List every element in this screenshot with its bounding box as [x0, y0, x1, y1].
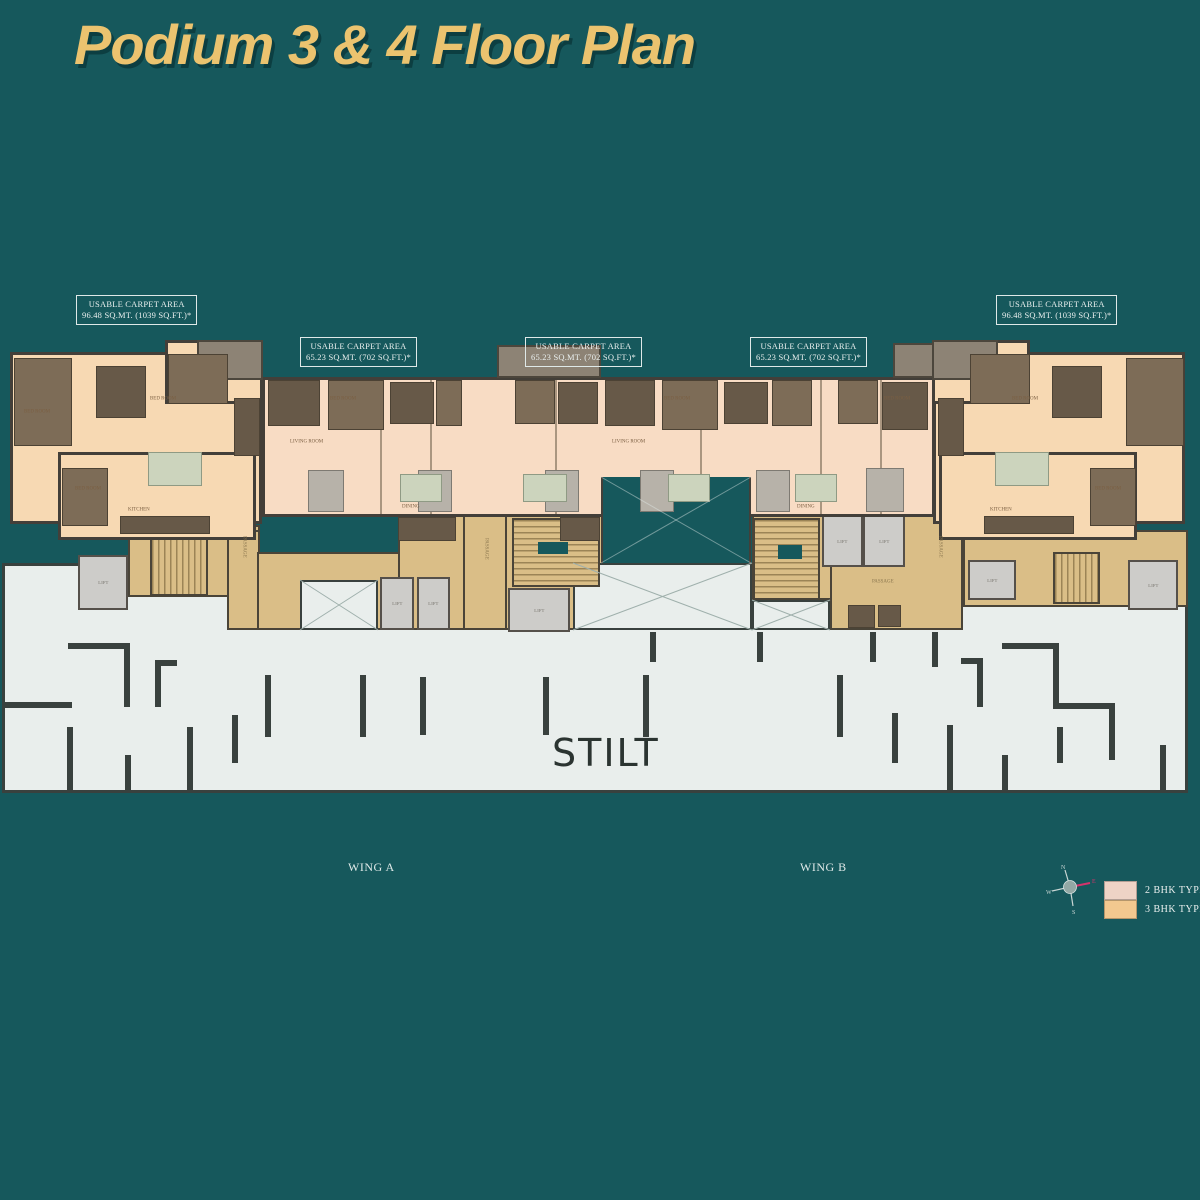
toilet-block: [308, 470, 344, 512]
area-label: USABLE CARPET AREA 96.48 SQ.MT. (1039 SQ…: [76, 295, 197, 325]
wall-segment: [947, 725, 953, 792]
area-label: USABLE CARPET AREA 65.23 SQ.MT. (702 SQ.…: [525, 337, 642, 367]
floor-plan-poster: LIFT LIFT LIFT LIFT LIFT LIFT LIFT LIFT: [0, 0, 1200, 1200]
room-label: BED ROOM: [75, 485, 101, 491]
furniture-block: [662, 380, 718, 430]
furniture-wardrobe: [1052, 366, 1102, 418]
wall-segment: [124, 643, 130, 707]
compass-n: N: [1061, 865, 1066, 871]
wall-segment: [1109, 703, 1115, 760]
area-label-line2: 96.48 SQ.MT. (1039 SQ.FT.)*: [1002, 310, 1111, 321]
legend-item-2bhk: 2 BHK TYPE 2: [1104, 881, 1200, 900]
lift-label: LIFT: [98, 580, 108, 585]
furniture-block: [436, 380, 462, 426]
compass-e: E: [1092, 879, 1096, 885]
furniture-bed: [1090, 468, 1136, 526]
lift-label: LIFT: [534, 608, 544, 613]
area-label-line1: USABLE CARPET AREA: [82, 299, 191, 310]
area-label-line1: USABLE CARPET AREA: [306, 341, 411, 352]
room-label: KITCHEN: [128, 506, 150, 512]
kitchen-counter: [560, 517, 600, 541]
compass-w: W: [1046, 890, 1052, 896]
lift-label: LIFT: [392, 601, 402, 606]
toilet-block: [866, 468, 904, 512]
staircase: [753, 518, 820, 600]
wall-segment: [420, 677, 426, 735]
meter-room: [848, 605, 875, 628]
stair-landing: [538, 542, 568, 554]
area-label-line1: USABLE CARPET AREA: [531, 341, 636, 352]
dining-table: [995, 452, 1049, 486]
crossed-open-area: [300, 580, 378, 630]
meter-room: [878, 605, 901, 627]
room-label: BED ROOM: [150, 395, 176, 401]
wall-segment: [932, 632, 938, 667]
furniture-block: [838, 380, 878, 424]
kitchen-counter: [120, 516, 210, 534]
wall-segment: [2, 702, 72, 708]
room-label: BED ROOM: [884, 395, 910, 401]
wall-segment: [643, 675, 649, 737]
room-label: DINING: [797, 503, 815, 509]
wall-segment: [892, 713, 898, 763]
wall-segment: [125, 755, 131, 790]
furniture-block: [390, 382, 434, 424]
lift-label: LIFT: [428, 601, 438, 606]
legend-label-2bhk: 2 BHK TYPE 2: [1145, 885, 1200, 896]
lift-label: LIFT: [879, 539, 889, 544]
area-label-line2: 65.23 SQ.MT. (702 SQ.FT.)*: [531, 352, 636, 363]
area-label-line1: USABLE CARPET AREA: [756, 341, 861, 352]
lift-box: LIFT: [380, 577, 414, 630]
wall-segment: [68, 643, 130, 649]
furniture-block: [772, 380, 812, 426]
wall-segment: [67, 727, 73, 790]
wall-segment: [1002, 755, 1008, 793]
room-label: BED ROOM: [330, 395, 356, 401]
furniture-block: [515, 380, 555, 424]
wall-segment: [265, 675, 271, 737]
wall-segment: [977, 658, 983, 707]
furniture-wardrobe: [234, 398, 260, 456]
furniture-bed: [62, 468, 108, 526]
crossed-open-area: [752, 600, 830, 630]
page-title: Podium 3 & 4 Floor Plan: [74, 12, 695, 77]
wall-segment: [187, 727, 193, 790]
wall-segment: [837, 675, 843, 737]
wall-segment: [650, 632, 656, 662]
toilet-block: [756, 470, 790, 512]
furniture-wardrobe: [96, 366, 146, 418]
passage-label: PASSAGE: [938, 536, 944, 558]
wall-segment: [1053, 703, 1115, 709]
passage-label: PASSAGE: [872, 578, 894, 584]
wall-segment: [1160, 745, 1166, 793]
area-label-line1: USABLE CARPET AREA: [1002, 299, 1111, 310]
legend-swatch-3bhk: [1104, 900, 1137, 919]
compass-icon: N E S W: [1046, 862, 1100, 916]
lift-box: LIFT: [863, 515, 905, 567]
room-label: LIVING ROOM: [612, 438, 645, 444]
area-label-line2: 96.48 SQ.MT. (1039 SQ.FT.)*: [82, 310, 191, 321]
wall-segment: [1002, 643, 1059, 649]
dining-table: [523, 474, 567, 502]
wing-b-label: WING B: [800, 860, 847, 875]
dining-table: [400, 474, 442, 502]
lift-label: LIFT: [1148, 583, 1158, 588]
passage-label: PASSAGE: [484, 538, 490, 560]
wall-segment: [1057, 727, 1063, 763]
dining-table: [148, 452, 202, 486]
wall-segment: [870, 632, 876, 662]
lift-box: LIFT: [822, 515, 863, 567]
area-label: USABLE CARPET AREA 96.48 SQ.MT. (1039 SQ…: [996, 295, 1117, 325]
wall-segment: [1053, 643, 1059, 707]
area-label-line2: 65.23 SQ.MT. (702 SQ.FT.)*: [306, 352, 411, 363]
lift-box: LIFT: [78, 555, 128, 610]
furniture-bed: [168, 354, 228, 404]
kitchen-counter: [984, 516, 1074, 534]
furniture-block: [882, 382, 928, 430]
area-label: USABLE CARPET AREA 65.23 SQ.MT. (702 SQ.…: [300, 337, 417, 367]
wall-segment: [757, 632, 763, 662]
wall-segment: [543, 677, 549, 735]
kitchen-counter: [398, 517, 456, 541]
passage-label: PASSAGE: [242, 536, 248, 558]
furniture-block: [605, 380, 655, 426]
room-label: BED ROOM: [1012, 395, 1038, 401]
staircase: [1053, 552, 1100, 604]
furniture-block: [558, 382, 598, 424]
lift-box: LIFT: [508, 588, 570, 632]
wall-segment: [360, 675, 366, 737]
room-label: KITCHEN: [990, 506, 1012, 512]
furniture-bed: [1126, 358, 1184, 446]
furniture-block: [328, 380, 384, 430]
wall-segment: [155, 660, 161, 707]
lift-label: LIFT: [837, 539, 847, 544]
room-label: BED ROOM: [1095, 485, 1121, 491]
dining-table: [795, 474, 837, 502]
lift-label: LIFT: [987, 578, 997, 583]
furniture-bed: [14, 358, 72, 446]
room-label: LIVING ROOM: [290, 438, 323, 444]
furniture-wardrobe: [938, 398, 964, 456]
lift-box: LIFT: [417, 577, 450, 630]
room-label: BED ROOM: [664, 395, 690, 401]
stair-landing: [778, 545, 802, 559]
legend-label-3bhk: 3 BHK TYPE 1: [1145, 904, 1200, 915]
legend-item-3bhk: 3 BHK TYPE 1: [1104, 900, 1200, 919]
room-label: DINING: [402, 503, 420, 509]
wall-segment: [232, 715, 238, 763]
furniture-block: [724, 382, 768, 424]
dining-table: [668, 474, 710, 502]
lift-box: LIFT: [1128, 560, 1178, 610]
stilt-label: STILT: [552, 731, 660, 775]
area-label: USABLE CARPET AREA 65.23 SQ.MT. (702 SQ.…: [750, 337, 867, 367]
room-label: BED ROOM: [24, 408, 50, 414]
area-label-line2: 65.23 SQ.MT. (702 SQ.FT.)*: [756, 352, 861, 363]
compass-s: S: [1072, 910, 1075, 916]
passage-corridor: [463, 512, 507, 630]
lift-box: LIFT: [968, 560, 1016, 600]
furniture-block: [268, 380, 320, 426]
legend-swatch-2bhk: [1104, 881, 1137, 900]
wing-a-label: WING A: [348, 860, 395, 875]
